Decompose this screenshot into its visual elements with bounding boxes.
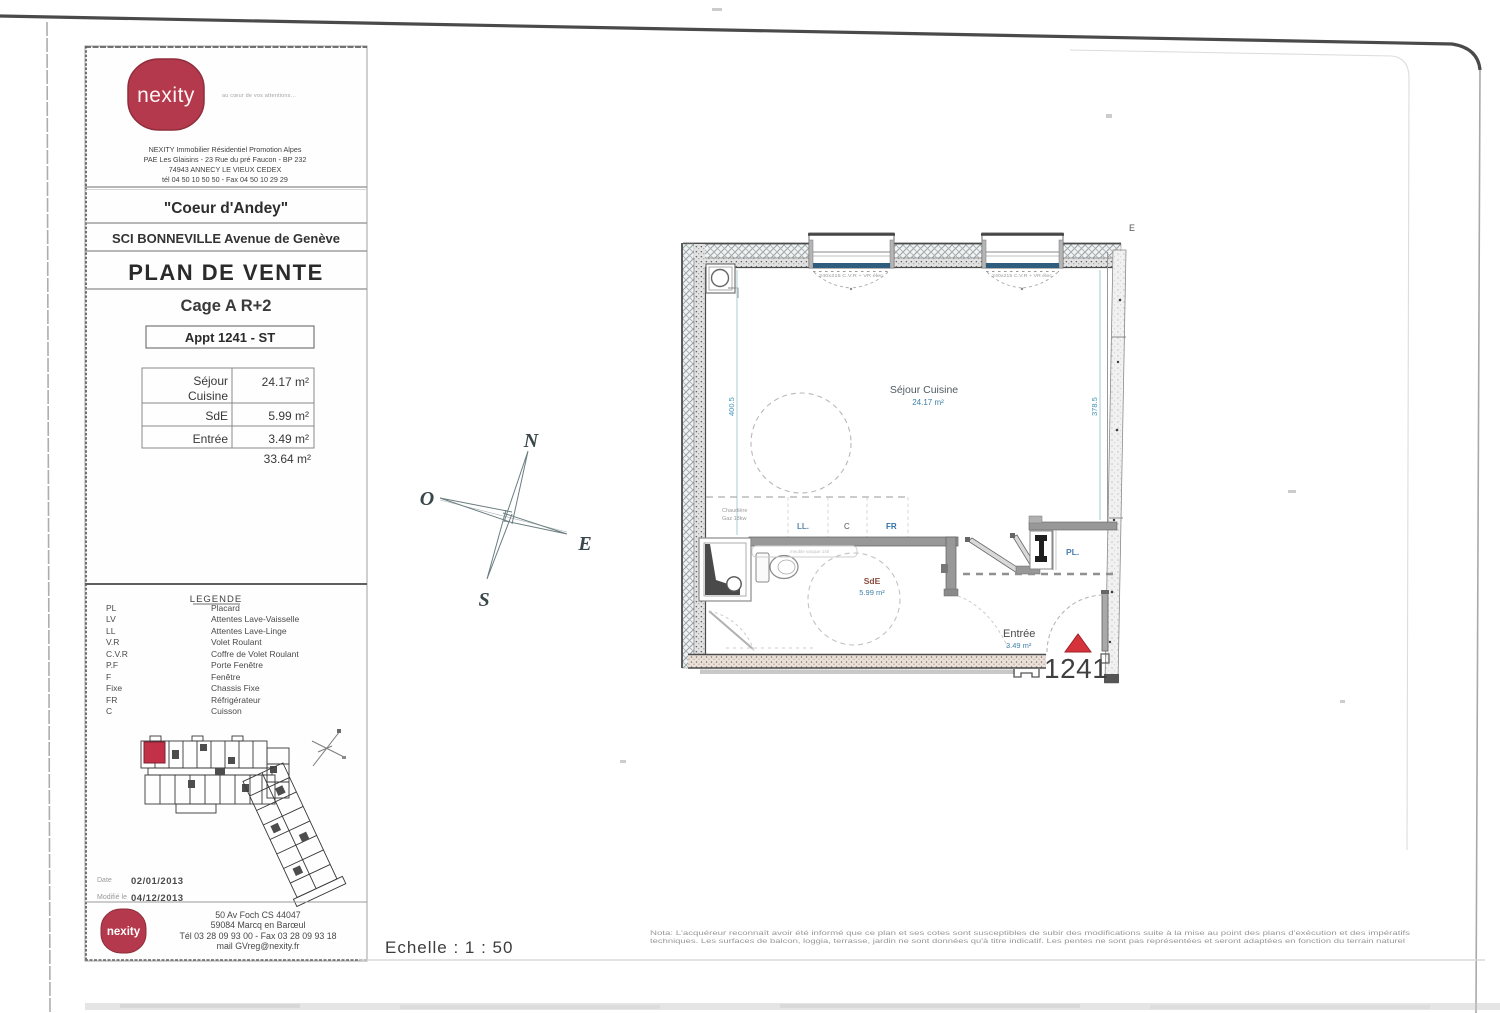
svg-text:Date: Date — [97, 877, 112, 884]
svg-text:Fenêtre: Fenêtre — [211, 672, 241, 682]
svg-text:33.64 m²: 33.64 m² — [264, 452, 311, 466]
svg-text:LL.: LL. — [797, 522, 809, 531]
svg-text:"Coeur d'Andey": "Coeur d'Andey" — [164, 200, 288, 217]
svg-text:mail GVreg@nexity.fr: mail GVreg@nexity.fr — [217, 941, 300, 951]
svg-text:N: N — [523, 430, 540, 452]
svg-text:Entrée: Entrée — [193, 432, 229, 446]
svg-text:Réfrigérateur: Réfrigérateur — [211, 695, 261, 705]
svg-text:Cage A R+2: Cage A R+2 — [181, 297, 272, 315]
svg-text:Séjour Cuisine: Séjour Cuisine — [890, 384, 958, 396]
svg-text:Nota: L'acquéreur reconnaît av: Nota: L'acquéreur reconnaît avoir été in… — [650, 930, 1411, 937]
svg-text:LL: LL — [106, 626, 116, 636]
svg-text:1241: 1241 — [1044, 653, 1108, 684]
svg-text:Volet Roulant: Volet Roulant — [211, 637, 262, 647]
svg-text:SdE: SdE — [864, 576, 881, 586]
svg-text:techniques. Les surfaces de ba: techniques. Les surfaces de balcon, logg… — [650, 938, 1406, 945]
svg-text:PL.: PL. — [1066, 547, 1079, 557]
svg-text:Porte Fenêtre: Porte Fenêtre — [211, 660, 263, 670]
svg-text:Chaudière: Chaudière — [722, 508, 747, 514]
svg-text:PAE Les Glaisins - 23 Rue du: PAE Les Glaisins - 23 Rue du pré Faucon … — [144, 155, 307, 164]
svg-text:nexity: nexity — [107, 926, 141, 938]
svg-text:Fixe: Fixe — [106, 683, 122, 693]
svg-text:au cœur de vos attentions…: au cœur de vos attentions… — [222, 93, 296, 99]
svg-text:24.17 m²: 24.17 m² — [912, 398, 944, 407]
svg-text:C: C — [106, 706, 112, 716]
svg-text:24.17 m²: 24.17 m² — [262, 375, 309, 389]
svg-text:378.5: 378.5 — [1090, 397, 1099, 416]
svg-text:Séjour: Séjour — [193, 374, 228, 388]
svg-text:nexity: nexity — [137, 84, 195, 107]
svg-text:Echelle : 1 : 50: Echelle : 1 : 50 — [385, 938, 513, 957]
svg-text:FR: FR — [106, 695, 117, 705]
svg-text:Cuisson: Cuisson — [211, 706, 242, 716]
svg-text:E: E — [1129, 223, 1135, 233]
svg-text:240x215 C.V.R + VR élec: 240x215 C.V.R + VR élec — [819, 273, 884, 278]
svg-text:O: O — [420, 488, 434, 510]
svg-text:59084 Marcq en Barœul: 59084 Marcq en Barœul — [211, 920, 306, 930]
svg-text:Placard: Placard — [211, 603, 240, 613]
svg-text:400.5: 400.5 — [727, 397, 736, 416]
svg-text:Chassis Fixe: Chassis Fixe — [211, 683, 260, 693]
svg-text:Entrée: Entrée — [1003, 628, 1035, 640]
svg-text:Gaz 18kw: Gaz 18kw — [722, 516, 746, 522]
svg-text:5.99 m²: 5.99 m² — [859, 588, 885, 597]
svg-text:P.F: P.F — [106, 660, 118, 670]
svg-text:Cuisine: Cuisine — [188, 389, 228, 403]
svg-text:Attentes Lave-Linge: Attentes Lave-Linge — [211, 626, 287, 636]
svg-text:PL: PL — [106, 603, 117, 613]
svg-text:S: S — [478, 589, 489, 611]
svg-text:PLAN DE VENTE: PLAN DE VENTE — [128, 260, 324, 285]
svg-text:E: E — [577, 533, 591, 555]
svg-text:5.99 m²: 5.99 m² — [268, 409, 309, 423]
svg-text:LV: LV — [106, 614, 116, 624]
svg-text:NEXITY Immobilier Résidentiel: NEXITY Immobilier Résidentiel Promotion … — [149, 145, 302, 154]
svg-text:Coffre de Volet Roulant: Coffre de Volet Roulant — [211, 649, 299, 659]
svg-text:02/01/2013: 02/01/2013 — [131, 876, 184, 887]
svg-text:50 Av Foch CS 44047: 50 Av Foch CS 44047 — [215, 910, 301, 920]
svg-text:SdE: SdE — [205, 409, 228, 423]
svg-text:V.R: V.R — [106, 637, 119, 647]
svg-text:tél 04 50 10 50 50 - Fax 0: tél 04 50 10 50 50 - Fax 04 50 10 29 29 — [162, 175, 288, 184]
svg-text:3.49 m²: 3.49 m² — [268, 432, 309, 446]
svg-text:F: F — [106, 672, 111, 682]
svg-text:Modifié le: Modifié le — [97, 894, 127, 901]
svg-text:Appt 1241 - ST: Appt 1241 - ST — [185, 330, 275, 345]
svg-text:FR: FR — [886, 522, 897, 531]
svg-text:SCI BONNEVILLE Avenue de Genèv: SCI BONNEVILLE Avenue de Genève — [112, 231, 340, 246]
svg-text:3.49 m²: 3.49 m² — [1006, 641, 1032, 650]
svg-text:74943 ANNECY LE VIEUX CEDEX: 74943 ANNECY LE VIEUX CEDEX — [169, 165, 282, 174]
svg-text:Tél 03 28 09 93 00 - Fax 03 28: Tél 03 28 09 93 00 - Fax 03 28 09 93 18 — [180, 931, 337, 941]
svg-text:240x215 C.V.R + VR élec: 240x215 C.V.R + VR élec — [992, 273, 1053, 278]
svg-text:C.V.R: C.V.R — [106, 649, 128, 659]
svg-text:meuble vasque 140: meuble vasque 140 — [790, 549, 830, 554]
svg-text:Attentes Lave-Vaisselle: Attentes Lave-Vaisselle — [211, 614, 299, 624]
svg-text:C: C — [844, 522, 850, 531]
